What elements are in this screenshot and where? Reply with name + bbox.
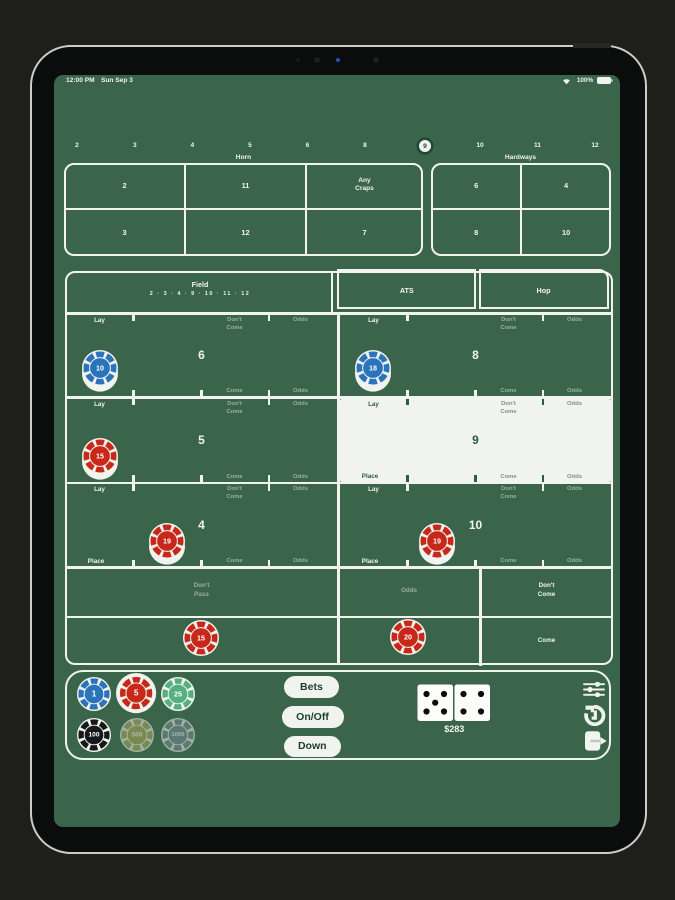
svg-text:15: 15 — [197, 633, 205, 642]
svg-text:19: 19 — [163, 537, 171, 546]
svg-text:1: 1 — [92, 689, 97, 698]
svg-text:19: 19 — [433, 537, 441, 546]
svg-text:25: 25 — [174, 690, 182, 699]
svg-text:20: 20 — [404, 632, 412, 641]
svg-text:1000: 1000 — [172, 732, 185, 738]
svg-text:9: 9 — [423, 143, 427, 150]
svg-text:500: 500 — [131, 731, 142, 738]
svg-text:100: 100 — [88, 731, 99, 738]
svg-text:15: 15 — [96, 452, 104, 461]
svg-text:5: 5 — [134, 689, 139, 698]
svg-text:18: 18 — [369, 364, 377, 373]
svg-text:10: 10 — [96, 364, 104, 373]
